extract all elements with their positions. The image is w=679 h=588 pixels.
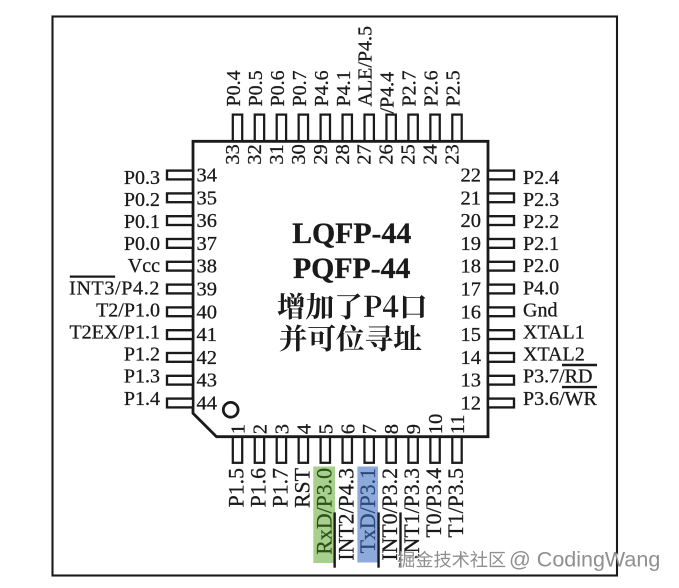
svg-text:P1.6: P1.6 <box>246 468 270 507</box>
svg-text:40: 40 <box>197 301 218 323</box>
svg-text:INT1/P3.3: INT1/P3.3 <box>400 468 424 561</box>
svg-text:28: 28 <box>332 144 354 165</box>
svg-text:P2.4: P2.4 <box>523 167 559 189</box>
svg-text:2: 2 <box>249 424 271 434</box>
svg-text:P1.4: P1.4 <box>124 388 160 410</box>
svg-text:P0.7: P0.7 <box>289 70 311 106</box>
svg-text:31: 31 <box>266 144 288 165</box>
svg-text:@ CodingWang: @ CodingWang <box>509 548 660 572</box>
svg-text:P2.6: P2.6 <box>421 70 443 106</box>
svg-text:P0.6: P0.6 <box>267 70 289 106</box>
svg-text:P1.5: P1.5 <box>225 468 249 507</box>
svg-text:14: 14 <box>461 347 482 369</box>
svg-text:LQFP-44: LQFP-44 <box>292 217 411 250</box>
svg-text:Gnd: Gnd <box>523 299 557 321</box>
svg-text:9: 9 <box>403 424 425 434</box>
svg-text:INT3/P4.2: INT3/P4.2 <box>69 277 160 299</box>
svg-text:32: 32 <box>244 144 266 165</box>
svg-text:P4.6: P4.6 <box>311 70 333 106</box>
svg-text:15: 15 <box>461 324 482 346</box>
svg-text:35: 35 <box>197 187 218 209</box>
svg-text:P3.7/RD: P3.7/RD <box>523 366 592 388</box>
svg-text:34: 34 <box>197 165 218 187</box>
svg-text:36: 36 <box>197 210 218 232</box>
svg-text:30: 30 <box>288 144 310 165</box>
svg-text:P2.7: P2.7 <box>399 70 421 106</box>
svg-text:3: 3 <box>271 424 293 434</box>
svg-text:1: 1 <box>228 424 250 434</box>
svg-text:P0.4: P0.4 <box>223 70 245 106</box>
svg-text:12: 12 <box>461 393 482 415</box>
svg-text:10: 10 <box>425 414 447 435</box>
svg-text:33: 33 <box>222 144 244 165</box>
svg-text:24: 24 <box>420 144 442 165</box>
svg-text:P0.5: P0.5 <box>245 70 267 106</box>
svg-text:16: 16 <box>461 301 482 323</box>
svg-text:37: 37 <box>197 233 218 255</box>
svg-text:27: 27 <box>354 144 376 165</box>
svg-text:INT2/P4.3: INT2/P4.3 <box>334 468 358 561</box>
svg-text:P1.7: P1.7 <box>268 468 292 507</box>
svg-text:39: 39 <box>197 279 218 301</box>
svg-text:P4.1: P4.1 <box>333 70 355 106</box>
svg-text:P2.0: P2.0 <box>523 255 559 277</box>
svg-text:23: 23 <box>442 144 464 165</box>
svg-text:P0.0: P0.0 <box>124 233 160 255</box>
svg-text:29: 29 <box>310 144 332 165</box>
svg-text:P4.0: P4.0 <box>523 277 559 299</box>
svg-text:20: 20 <box>461 210 482 232</box>
svg-text:P2.1: P2.1 <box>523 233 559 255</box>
svg-text:38: 38 <box>197 256 218 278</box>
svg-text:P2.5: P2.5 <box>443 70 465 106</box>
svg-text:/P4.4: /P4.4 <box>377 72 399 114</box>
svg-text:T2/P1.0: T2/P1.0 <box>96 299 160 321</box>
svg-text:XTAL1: XTAL1 <box>523 322 585 344</box>
svg-text:22: 22 <box>461 165 482 187</box>
svg-text:P0.1: P0.1 <box>124 211 160 233</box>
svg-text:6: 6 <box>337 424 359 434</box>
svg-text:P1.3: P1.3 <box>124 366 160 388</box>
svg-text:P2.2: P2.2 <box>523 211 559 233</box>
svg-text:8: 8 <box>381 424 403 434</box>
svg-text:ALE/P4.5: ALE/P4.5 <box>355 26 377 107</box>
svg-text:PQFP-44: PQFP-44 <box>293 252 411 285</box>
svg-text:RST: RST <box>290 468 314 508</box>
svg-text:P3.6/WR: P3.6/WR <box>523 388 598 410</box>
svg-text:17: 17 <box>461 279 482 301</box>
svg-text:44: 44 <box>197 393 218 415</box>
svg-text:P0.2: P0.2 <box>124 189 160 211</box>
svg-text:P0.3: P0.3 <box>124 167 160 189</box>
svg-text:P2.3: P2.3 <box>523 189 559 211</box>
svg-text:Vcc: Vcc <box>128 255 160 277</box>
svg-text:25: 25 <box>398 144 420 165</box>
svg-text:41: 41 <box>197 324 218 346</box>
svg-text:21: 21 <box>461 187 482 209</box>
svg-text:7: 7 <box>359 424 381 434</box>
svg-text:T2EX/P1.1: T2EX/P1.1 <box>69 322 160 344</box>
svg-text:RxD/P3.0: RxD/P3.0 <box>312 468 336 555</box>
svg-text:26: 26 <box>376 144 398 165</box>
svg-text:42: 42 <box>197 347 218 369</box>
svg-text:13: 13 <box>461 370 482 392</box>
svg-text:5: 5 <box>315 424 337 434</box>
svg-text:XTAL2: XTAL2 <box>523 344 585 366</box>
svg-text:11: 11 <box>447 415 469 435</box>
svg-text:T0/P3.4: T0/P3.4 <box>422 468 446 538</box>
svg-text:TxD/P3.1: TxD/P3.1 <box>356 468 380 553</box>
svg-text:43: 43 <box>197 370 218 392</box>
svg-text:18: 18 <box>461 256 482 278</box>
svg-text:T1/P3.5: T1/P3.5 <box>444 468 468 538</box>
svg-text:4: 4 <box>293 424 315 434</box>
svg-text:19: 19 <box>461 233 482 255</box>
svg-text:INT0/P3.2: INT0/P3.2 <box>378 468 402 561</box>
svg-text:P1.2: P1.2 <box>124 344 160 366</box>
